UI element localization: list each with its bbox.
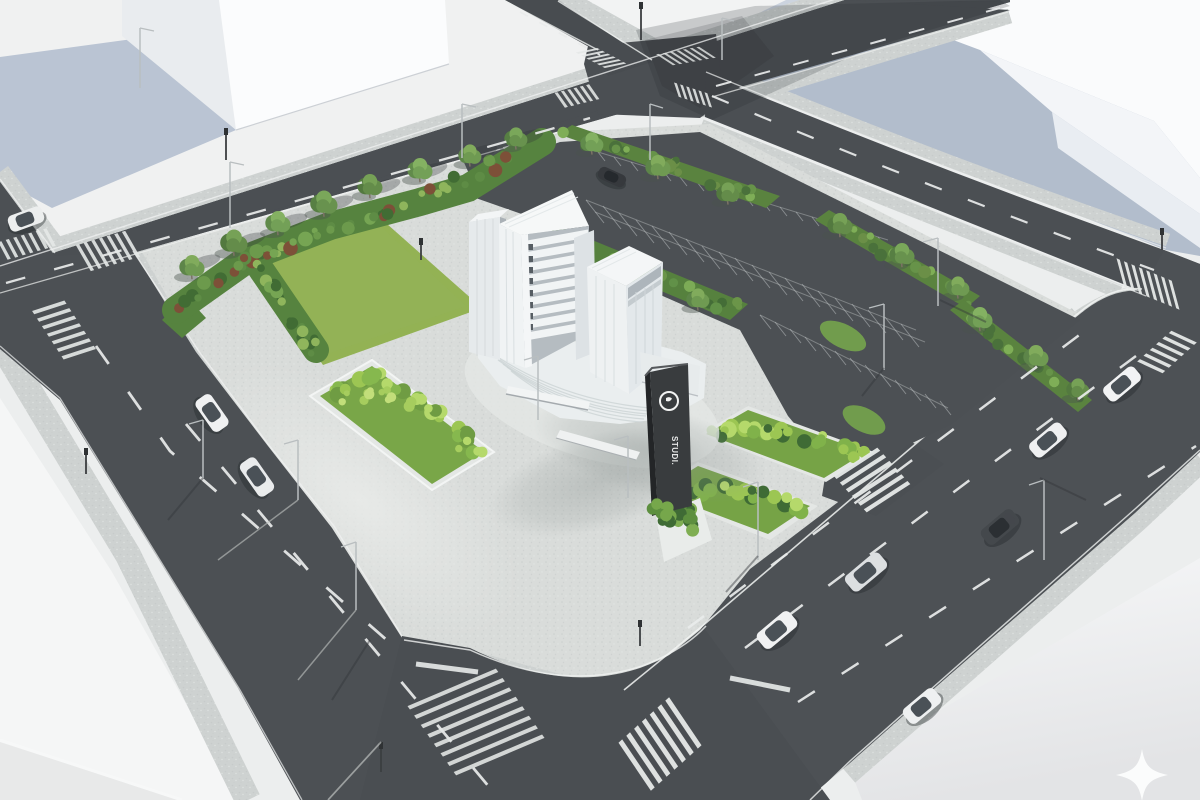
svg-text:STUDI.: STUDI. <box>670 436 679 465</box>
